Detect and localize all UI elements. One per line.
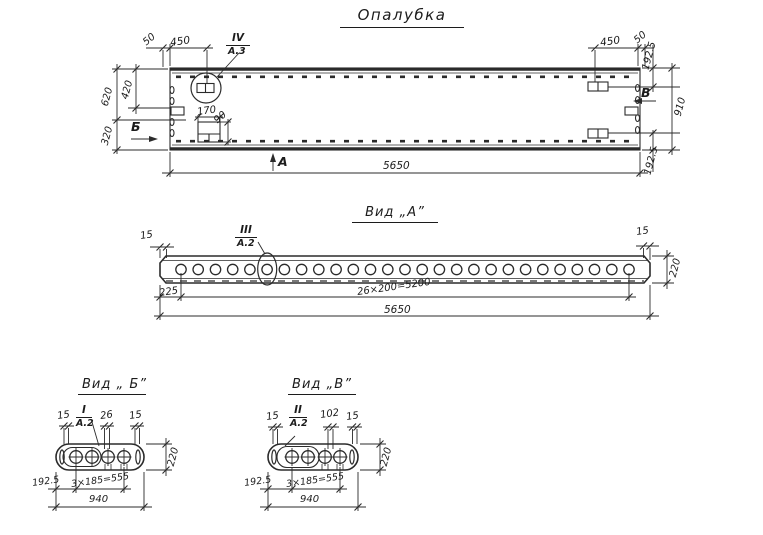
view-a-dim-15-left: 15 bbox=[140, 230, 154, 242]
view-a-holes bbox=[176, 264, 634, 274]
view-v-linework bbox=[260, 424, 386, 512]
plan-dim-450-left: 450 bbox=[170, 35, 191, 48]
view-b-title: Вид „ Б” bbox=[78, 378, 146, 395]
plan-callout-number: IV bbox=[226, 33, 250, 46]
sheet-title: Опалубка bbox=[340, 8, 464, 28]
view-v-dim-total-940: 940 bbox=[300, 495, 319, 505]
view-a-title: Вид „А” bbox=[352, 206, 438, 223]
view-b-callout-number: I bbox=[76, 405, 92, 418]
plan-dim-450-right: 450 bbox=[600, 35, 621, 48]
view-v-dim-15-right: 15 bbox=[346, 411, 360, 423]
view-b-callout-sheet-ref: А.2 bbox=[76, 419, 94, 429]
view-v-callout-sheet-ref: А.2 bbox=[290, 419, 308, 429]
view-v-title: Вид „В” bbox=[288, 378, 356, 395]
view-v-dim-15-left: 15 bbox=[266, 411, 280, 423]
view-b-linework bbox=[48, 422, 172, 511]
view-a-callout-number: III bbox=[235, 225, 257, 238]
plan-section-marker-v: В bbox=[641, 87, 651, 100]
plan-section-marker-a: А bbox=[278, 156, 288, 169]
plan-callout-sheet-ref: А.3 bbox=[228, 47, 246, 57]
plan-section-marker-b: Б bbox=[131, 121, 141, 134]
view-a-dim-total-5650: 5650 bbox=[384, 305, 411, 316]
view-b-dim-total-940: 940 bbox=[89, 495, 108, 505]
view-a-callout-sheet-ref: А.2 bbox=[237, 239, 255, 249]
plan-panel bbox=[170, 53, 640, 150]
view-b-dim-15-right: 15 bbox=[129, 410, 143, 422]
drawing-sheet: Опалубка 50 450 IV А.3 620 420 320 Б 170… bbox=[0, 0, 763, 535]
view-a-dim-15-right: 15 bbox=[636, 226, 650, 238]
plan-dim-total-5650: 5650 bbox=[383, 161, 410, 172]
view-v-callout-number: II bbox=[289, 405, 307, 418]
view-b-dim-26: 26 bbox=[100, 410, 114, 422]
view-b-dim-15-left: 15 bbox=[57, 410, 71, 422]
